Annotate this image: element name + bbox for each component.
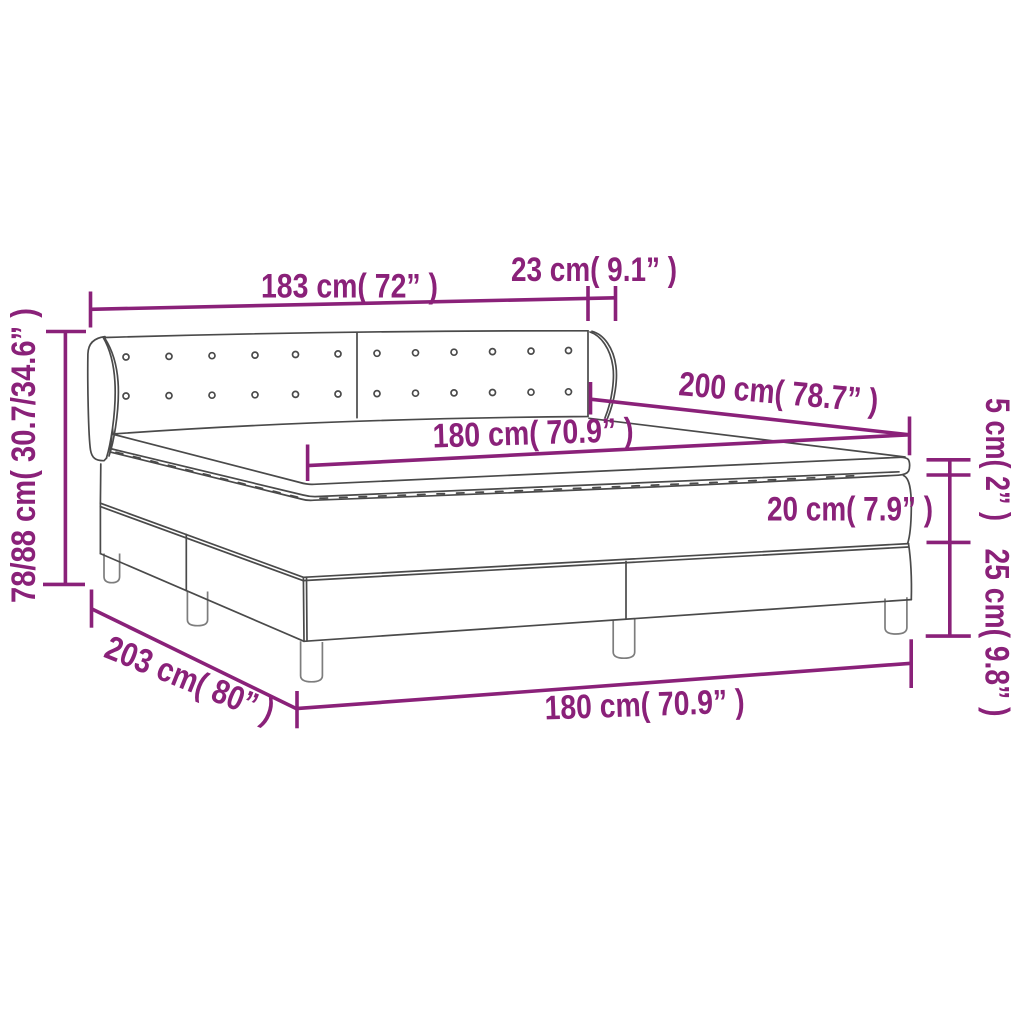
svg-text:5 cm( 2” ): 5 cm( 2” ) — [978, 398, 1016, 521]
svg-text:183 cm( 72” ): 183 cm( 72” ) — [261, 267, 438, 305]
svg-text:180 cm( 70.9” ): 180 cm( 70.9” ) — [544, 683, 745, 728]
svg-text:20 cm( 7.9” ): 20 cm( 7.9” ) — [767, 490, 933, 528]
svg-text:25 cm( 9.8” ): 25 cm( 9.8” ) — [978, 549, 1016, 717]
svg-text:78/88 cm( 30.7/34.6” ): 78/88 cm( 30.7/34.6” ) — [5, 308, 43, 603]
svg-text:180 cm( 70.9” ): 180 cm( 70.9” ) — [432, 411, 634, 455]
svg-text:23 cm( 9.1” ): 23 cm( 9.1” ) — [511, 251, 677, 289]
